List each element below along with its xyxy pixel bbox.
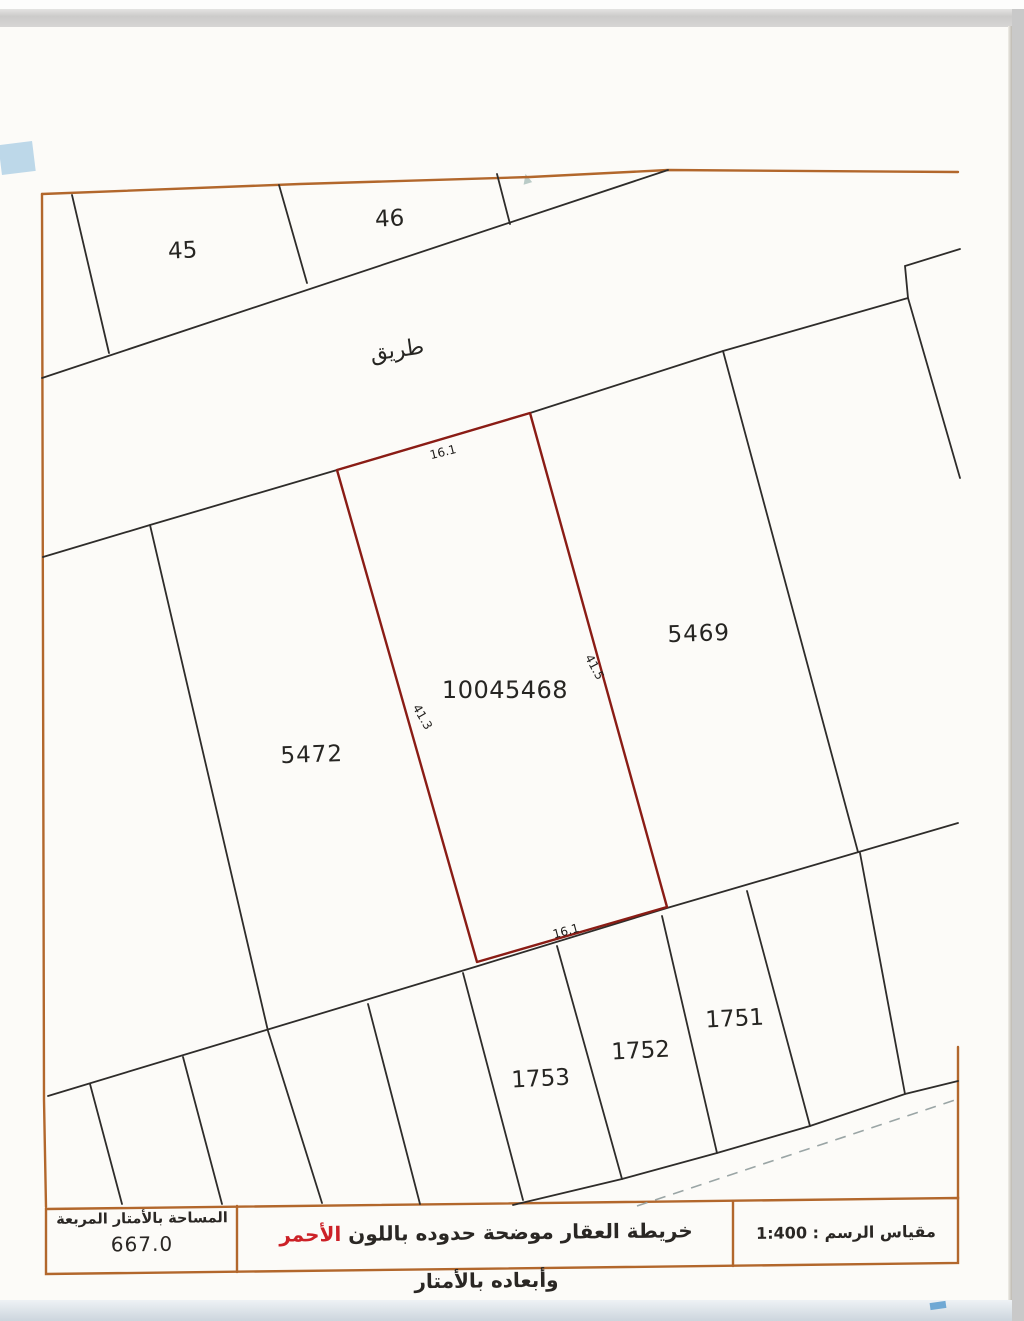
plot-label-5469: 5469 — [667, 620, 730, 648]
orange-map-frame — [42, 170, 958, 1274]
plot-label-46: 46 — [374, 205, 405, 232]
note-prefix: خريطة العقار موضحة حدوده باللون — [341, 1218, 693, 1246]
plot-number-labels: 45 46 طريق 5472 5469 10045468 1753 1752 … — [167, 205, 764, 1093]
dimension-top: 16.1 — [428, 442, 457, 462]
legend-area-value: 667.0 — [50, 1231, 234, 1257]
subject-plot-number: 10045468 — [442, 676, 568, 704]
dimension-bottom: 16.1 — [551, 921, 580, 941]
legend-area-label: المساحة بالأمتار المربعة — [50, 1210, 234, 1228]
scale-label: مقياس الرسم : — [807, 1222, 936, 1242]
dimension-left: 41.3 — [410, 702, 435, 732]
plot-label-1753: 1753 — [511, 1064, 571, 1093]
note-suffix: وأبعاده بالأمتار — [414, 1268, 558, 1294]
note-highlight-red-word: الأحمر — [279, 1222, 341, 1247]
plot-label-1752: 1752 — [611, 1036, 671, 1065]
dashed-boundary-line — [637, 1099, 958, 1206]
scanned-cadastral-map-page: { "map": { "road_label": "طريق", "plots"… — [0, 0, 1024, 1321]
plot-label-1751: 1751 — [705, 1004, 765, 1033]
plot-label-5472: 5472 — [280, 741, 343, 769]
plot-label-45: 45 — [167, 237, 198, 264]
legend-red-boundary-note: خريطة العقار موضحة حدوده باللون الأحمر و… — [243, 1206, 729, 1259]
road-label: طريق — [369, 334, 426, 366]
legend-scale-box: مقياس الرسم : 1:400 — [740, 1212, 952, 1254]
scale-value: 1:400 — [756, 1223, 807, 1243]
cadastral-map-drawing: 45 46 طريق 5472 5469 10045468 1753 1752 … — [0, 0, 1024, 1321]
